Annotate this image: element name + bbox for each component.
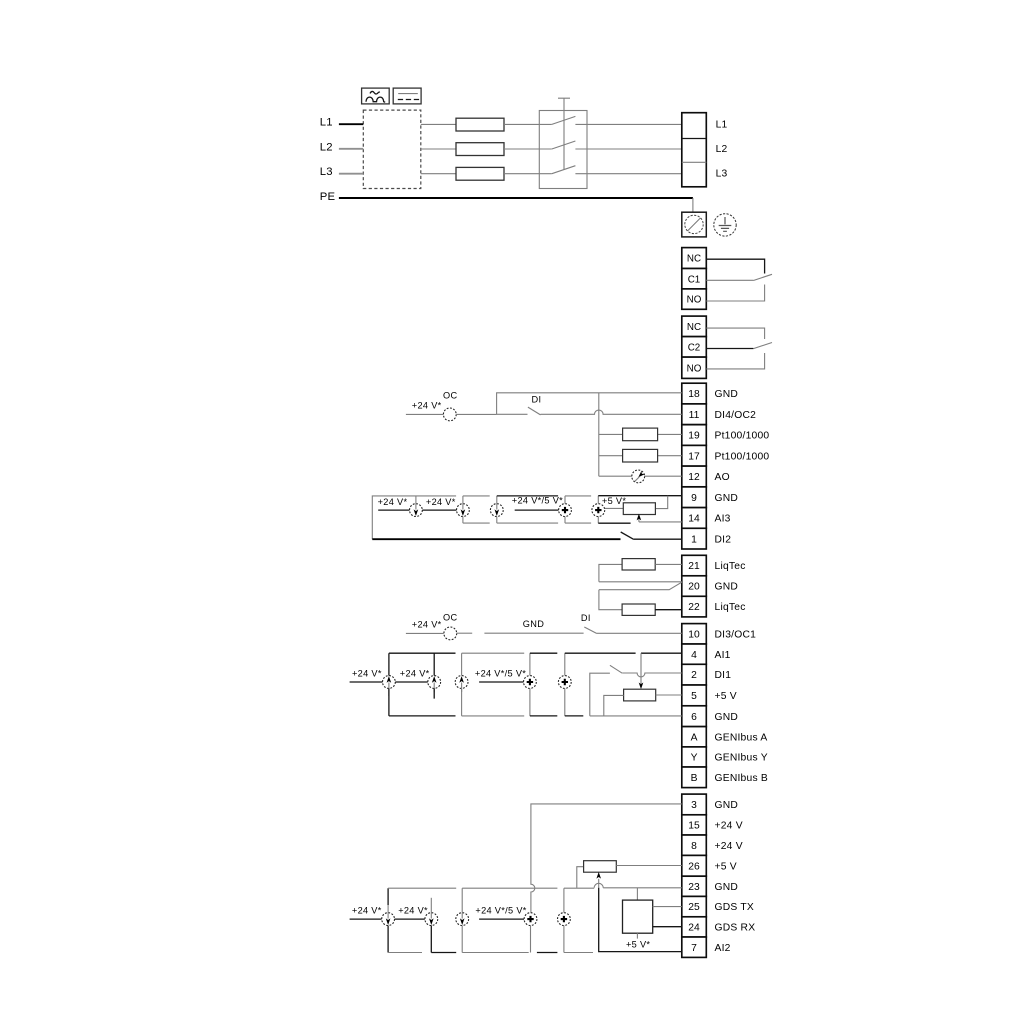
svg-text:+24 V*/5 V*: +24 V*/5 V* [475, 906, 526, 916]
svg-text:22: 22 [688, 602, 700, 613]
svg-text:L2: L2 [716, 144, 728, 155]
svg-text:24: 24 [688, 923, 700, 934]
svg-text:L1: L1 [320, 117, 333, 129]
svg-text:NC: NC [687, 254, 701, 265]
svg-text:Pt100/1000: Pt100/1000 [715, 451, 770, 462]
svg-text:L3: L3 [716, 169, 728, 180]
svg-text:5: 5 [691, 691, 697, 702]
svg-text:L1: L1 [716, 119, 728, 130]
svg-text:2: 2 [691, 670, 697, 681]
svg-text:DI2: DI2 [715, 534, 732, 545]
svg-text:C1: C1 [688, 274, 701, 285]
svg-text:7: 7 [691, 943, 697, 954]
svg-text:DI3/OC1: DI3/OC1 [715, 629, 757, 640]
svg-text:+5 V*: +5 V* [626, 939, 650, 949]
svg-text:11: 11 [689, 410, 700, 421]
svg-text:26: 26 [688, 861, 700, 872]
svg-text:+24 V*: +24 V* [352, 906, 382, 916]
svg-text:GND: GND [715, 712, 739, 723]
svg-text:GND: GND [715, 882, 739, 893]
svg-text:+24 V: +24 V [715, 821, 743, 832]
svg-text:+24 V*: +24 V* [426, 497, 456, 507]
svg-text:L3: L3 [320, 166, 333, 178]
svg-text:GENIbus A: GENIbus A [715, 732, 768, 743]
svg-text:+24 V*: +24 V* [378, 497, 408, 507]
svg-text:GDS TX: GDS TX [715, 902, 754, 913]
svg-text:+24 V*/5 V*: +24 V*/5 V* [475, 669, 526, 679]
svg-text:17: 17 [688, 451, 700, 462]
svg-text:1: 1 [691, 534, 697, 545]
svg-text:21: 21 [688, 561, 700, 572]
svg-text:LiqTec: LiqTec [715, 561, 746, 572]
svg-text:+5 V*: +5 V* [602, 496, 626, 506]
svg-text:DI: DI [532, 394, 542, 404]
svg-text:GENIbus B: GENIbus B [715, 773, 769, 784]
svg-text:AI2: AI2 [715, 943, 731, 954]
svg-text:NC: NC [687, 322, 701, 333]
svg-text:8: 8 [691, 841, 697, 852]
svg-text:NO: NO [687, 295, 702, 306]
svg-text:AO: AO [715, 472, 730, 483]
svg-text:+24 V*: +24 V* [400, 669, 430, 679]
svg-text:4: 4 [691, 650, 697, 661]
svg-text:+5 V: +5 V [715, 861, 737, 872]
svg-text:OC: OC [443, 391, 457, 401]
svg-text:14: 14 [688, 514, 700, 525]
svg-text:AI1: AI1 [715, 650, 731, 661]
svg-text:GND: GND [715, 582, 739, 593]
svg-text:20: 20 [688, 582, 700, 593]
svg-text:AI3: AI3 [715, 514, 731, 525]
svg-text:LiqTec: LiqTec [715, 602, 746, 613]
svg-text:DI4/OC2: DI4/OC2 [715, 410, 757, 421]
svg-text:+24 V: +24 V [715, 841, 743, 852]
svg-text:19: 19 [688, 431, 700, 442]
svg-text:+24 V*/5 V*: +24 V*/5 V* [512, 496, 563, 506]
svg-text:+5 V: +5 V [715, 691, 737, 702]
svg-text:DI: DI [581, 613, 591, 623]
svg-text:L2: L2 [320, 141, 333, 153]
svg-text:25: 25 [688, 902, 700, 913]
svg-text:GND: GND [715, 493, 739, 504]
svg-text:GENIbus Y: GENIbus Y [715, 753, 768, 764]
svg-text:B: B [691, 773, 698, 784]
svg-text:Pt100/1000: Pt100/1000 [715, 431, 770, 442]
svg-text:OC: OC [443, 613, 457, 623]
svg-text:18: 18 [688, 389, 700, 400]
svg-text:10: 10 [688, 629, 700, 640]
svg-text:PE: PE [320, 191, 336, 203]
svg-text:+24 V*: +24 V* [398, 906, 428, 916]
svg-text:+24 V*: +24 V* [412, 400, 442, 410]
svg-text:Y: Y [691, 753, 698, 764]
svg-text:9: 9 [691, 493, 697, 504]
svg-text:GDS RX: GDS RX [715, 923, 756, 934]
svg-text:6: 6 [691, 712, 697, 723]
svg-text:3: 3 [691, 800, 697, 811]
svg-text:15: 15 [688, 821, 700, 832]
svg-text:+24 V*: +24 V* [352, 669, 382, 679]
svg-text:GND: GND [523, 619, 544, 629]
svg-text:DI1: DI1 [715, 670, 732, 681]
svg-text:GND: GND [715, 800, 739, 811]
svg-text:C2: C2 [688, 343, 701, 354]
svg-text:NO: NO [687, 363, 702, 374]
svg-text:+24 V*: +24 V* [412, 619, 442, 629]
svg-text:23: 23 [688, 882, 700, 893]
svg-text:12: 12 [688, 472, 700, 483]
svg-text:A: A [691, 732, 698, 743]
svg-text:GND: GND [715, 389, 739, 400]
